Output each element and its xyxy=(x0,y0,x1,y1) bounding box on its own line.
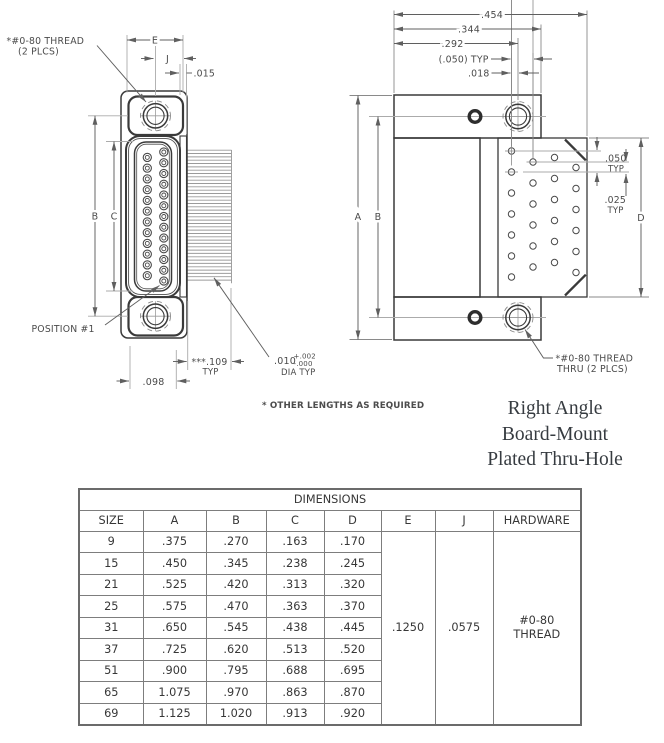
col-header-j: J xyxy=(435,510,493,531)
product-title-line3: Plated Thru-Hole xyxy=(430,447,664,473)
cell-size: 21 xyxy=(79,574,143,596)
col-header-c: C xyxy=(266,510,324,531)
col-header-b: B xyxy=(206,510,266,531)
cell-d: .245 xyxy=(324,553,381,575)
thru-hole xyxy=(551,154,557,160)
thru-hole xyxy=(530,201,536,207)
col-header-e: E xyxy=(381,510,435,531)
dim-label-454: .454 xyxy=(481,10,503,21)
cell-d: .870 xyxy=(324,682,381,704)
side-view-labels: .454 .344 .292 (.050) TYP .018 .050 TYP … xyxy=(355,10,645,375)
cell-a: .525 xyxy=(143,574,206,596)
dim-label-a: A xyxy=(355,212,362,223)
thru-hole xyxy=(551,259,557,265)
thru-hole xyxy=(573,269,579,275)
dim-label-025-typ: TYP xyxy=(607,206,624,216)
dim-label-018: .018 xyxy=(468,68,490,79)
cell-b: .470 xyxy=(206,596,266,618)
thru-hole xyxy=(551,175,557,181)
thru-hole xyxy=(530,243,536,249)
cell-b: .620 xyxy=(206,639,266,661)
cell-a: .575 xyxy=(143,596,206,618)
cell-e-shared: .1250 xyxy=(381,531,435,725)
cell-d: .920 xyxy=(324,703,381,725)
thru-hole xyxy=(551,217,557,223)
cell-c: .438 xyxy=(266,617,324,639)
thru-hole xyxy=(508,190,514,196)
dim-label-b: B xyxy=(92,211,99,222)
hardware-line2: THREAD xyxy=(494,628,581,642)
cell-a: .375 xyxy=(143,531,206,553)
dim-label-c: C xyxy=(111,211,118,222)
cell-d: .320 xyxy=(324,574,381,596)
side-view-dimensions xyxy=(358,15,641,359)
thru-hole xyxy=(573,164,579,170)
thread-callout-line2: (2 PLCS) xyxy=(18,47,59,58)
cell-size: 51 xyxy=(79,660,143,682)
dim-label-292: .292 xyxy=(442,39,464,50)
cell-b: .420 xyxy=(206,574,266,596)
thru-hole xyxy=(530,180,536,186)
cell-a: 1.075 xyxy=(143,682,206,704)
thru-hole xyxy=(508,253,514,259)
col-header-size: SIZE xyxy=(79,510,143,531)
position-1-label: POSITION #1 xyxy=(32,324,95,335)
thread-hole-bottom xyxy=(503,303,533,333)
dim-label-109: ***.109 xyxy=(191,357,227,368)
cell-c: .363 xyxy=(266,596,324,618)
thru-hole xyxy=(551,196,557,202)
thru-hole xyxy=(508,211,514,217)
col-header-d: D xyxy=(324,510,381,531)
cell-a: .650 xyxy=(143,617,206,639)
thru-hole xyxy=(573,227,579,233)
thru-hole xyxy=(508,232,514,238)
cell-d: .370 xyxy=(324,596,381,618)
cell-d: .445 xyxy=(324,617,381,639)
cell-c: .238 xyxy=(266,553,324,575)
table-row: 9 .375 .270 .163 .170 .1250 .0575 #0-80 … xyxy=(79,531,581,553)
thread-hole-top xyxy=(503,102,533,132)
dim-label-b-side: B xyxy=(375,212,382,223)
cell-c: .688 xyxy=(266,660,324,682)
dim-label-050-ref: (.050) TYP xyxy=(439,54,489,65)
thru-hole xyxy=(573,185,579,191)
dim-label-344: .344 xyxy=(458,25,480,36)
lead-ribbon xyxy=(187,150,232,280)
dim-label-109-typ: TYP xyxy=(201,368,218,378)
thread-thru-callout-line2: THRU (2 PLCS) xyxy=(556,364,628,375)
dim-label-050: .050 xyxy=(605,154,627,165)
product-title: Right Angle Board-Mount Plated Thru-Hole xyxy=(430,396,664,473)
dimensions-table: DIMENSIONS SIZE A B C D E J HARDWARE 9 .… xyxy=(78,488,582,726)
cell-d: .520 xyxy=(324,639,381,661)
side-view xyxy=(369,0,587,340)
dim-label-050-typ: TYP xyxy=(607,165,624,175)
thread-thru-callout-line1: *#0-80 THREAD xyxy=(556,354,634,365)
cell-size: 65 xyxy=(79,682,143,704)
footnote: * OTHER LENGTHS AS REQUIRED xyxy=(262,401,424,411)
chamfer-top xyxy=(565,140,586,161)
thru-hole xyxy=(530,264,536,270)
cell-b: .545 xyxy=(206,617,266,639)
cell-size: 31 xyxy=(79,617,143,639)
dim-label-010-minus: -.000 xyxy=(294,360,313,368)
cell-b: .270 xyxy=(206,531,266,553)
cell-c: .163 xyxy=(266,531,324,553)
cell-size: 9 xyxy=(79,531,143,553)
thru-hole xyxy=(551,238,557,244)
hardware-line1: #0-80 xyxy=(494,614,581,628)
dim-label-d: D xyxy=(637,213,645,224)
thru-hole xyxy=(508,274,514,280)
cell-b: 1.020 xyxy=(206,703,266,725)
thru-hole xyxy=(573,206,579,212)
cell-size: 25 xyxy=(79,596,143,618)
dim-label-025: .025 xyxy=(605,195,627,206)
col-header-a: A xyxy=(143,510,206,531)
cell-b: .795 xyxy=(206,660,266,682)
product-title-line2: Board-Mount xyxy=(430,422,664,448)
thru-hole-pattern xyxy=(505,0,579,280)
cell-c: .913 xyxy=(266,703,324,725)
thru-hole xyxy=(573,248,579,254)
cell-size: 15 xyxy=(79,553,143,575)
cell-a: 1.125 xyxy=(143,703,206,725)
dim-label-098: .098 xyxy=(143,377,165,388)
cell-b: .970 xyxy=(206,682,266,704)
cell-b: .345 xyxy=(206,553,266,575)
dim-label-e: E xyxy=(152,35,158,46)
thread-callout-line1: *#0-80 THREAD xyxy=(7,36,85,47)
dim-label-015: .015 xyxy=(194,69,216,80)
dim-label-010-sub: DIA TYP xyxy=(281,368,315,378)
side-body xyxy=(394,138,480,297)
thru-hole xyxy=(530,222,536,228)
cell-a: .450 xyxy=(143,553,206,575)
cell-d: .170 xyxy=(324,531,381,553)
product-title-line1: Right Angle xyxy=(430,396,664,422)
cell-hardware-shared: #0-80 THREAD xyxy=(493,531,581,725)
dim-label-j: J xyxy=(165,54,169,65)
cell-a: .900 xyxy=(143,660,206,682)
col-header-hardware: HARDWARE xyxy=(493,510,581,531)
cell-size: 37 xyxy=(79,639,143,661)
cell-size: 69 xyxy=(79,703,143,725)
cell-d: .695 xyxy=(324,660,381,682)
cell-c: .313 xyxy=(266,574,324,596)
side-bottom-flange xyxy=(394,297,541,340)
table-title: DIMENSIONS xyxy=(79,489,581,510)
cell-c: .513 xyxy=(266,639,324,661)
datasheet-page: E J .015 B C .098 ***.109 TYP .010 +.002… xyxy=(0,0,664,743)
cell-a: .725 xyxy=(143,639,206,661)
cell-j-shared: .0575 xyxy=(435,531,493,725)
cell-c: .863 xyxy=(266,682,324,704)
chamfer-bottom xyxy=(565,275,586,296)
